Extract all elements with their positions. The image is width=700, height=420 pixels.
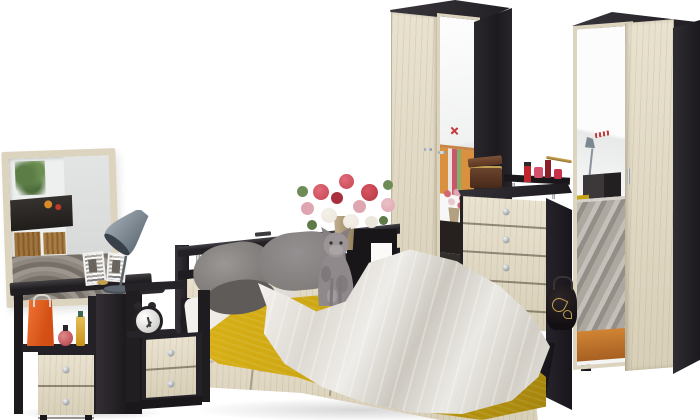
mirror-reflection-bedding [577,196,629,335]
flower [321,208,337,223]
handbag [546,284,577,330]
cabinet-drawers [146,336,196,397]
wardrobe-right-mirror-door [573,21,633,370]
cabinet-drawer-box [142,332,202,402]
drawer-knob [503,264,510,271]
drawer-pedestal [38,352,94,415]
cat-spot [321,266,331,282]
drawer-knob [503,236,510,243]
handbag-gold-print [563,310,572,319]
mirror-reflection-floor [577,328,629,362]
flower [339,174,354,189]
perfume-bottle [545,160,551,178]
mirror-reflection-item [55,204,61,210]
wardrobe-left-handle [438,151,446,154]
mirror-reflection-basket [43,232,66,254]
leaf [297,186,308,197]
phone-on-shelf [255,231,271,236]
cat-muzzle [329,245,343,255]
lamp-shade [103,210,156,255]
flower [313,184,329,200]
perfume-bottle [76,316,85,346]
mirror-reflection-detail [595,130,611,138]
flower [331,192,343,204]
cat-eye [329,241,332,244]
flower [365,216,378,228]
flower [301,202,314,215]
wardrobe-right-wood-door [625,19,674,371]
wardrobe-right-side-panel [673,20,700,374]
bedroom-set-photo [0,0,700,420]
clock-face [133,306,163,336]
pedestal-drawer [38,355,94,387]
mirror-reflection-basket [14,232,41,257]
gift-bag-handle [33,294,51,307]
drawer-knob [63,367,70,374]
mirror-reflection-item [44,200,52,208]
bedside-cabinet [120,282,224,420]
jewelry-box [470,166,502,188]
drawer-knob [503,208,510,215]
perfume-cap [78,311,83,317]
leaf [379,216,388,225]
mirror-reflection-shelf [10,195,73,232]
mirror-reflection-lamp [585,136,595,149]
lamp-shade-group [101,210,157,258]
cat-spot [336,275,348,293]
alarm-clock [132,302,158,333]
nail-polish [554,169,562,179]
flower [381,198,395,212]
mirror-reflection-plant [15,160,46,195]
perfume-bottle [58,330,73,346]
drawer-knob [63,399,70,406]
mirror-reflection-lamp-stem [589,149,594,175]
perfume-bottle [524,162,531,182]
cat-eye [339,241,342,244]
pedestal-foot [85,415,92,420]
leaf [383,180,393,190]
perfume-cap [63,325,68,331]
drawer-knob [168,349,175,356]
flower [361,184,378,201]
desk-left-panel [14,292,23,414]
wardrobe-left-handle [424,148,432,151]
flower [353,200,366,213]
wardrobe-right-handle [627,168,630,185]
handbag-handle [553,276,573,290]
cabinet-drawer [146,336,196,370]
perfume-bottle [534,167,543,178]
pedestal-foot [40,415,47,420]
drawer-knob [168,380,175,387]
cabinet-side-column [126,282,140,402]
wardrobe-right [565,8,700,376]
